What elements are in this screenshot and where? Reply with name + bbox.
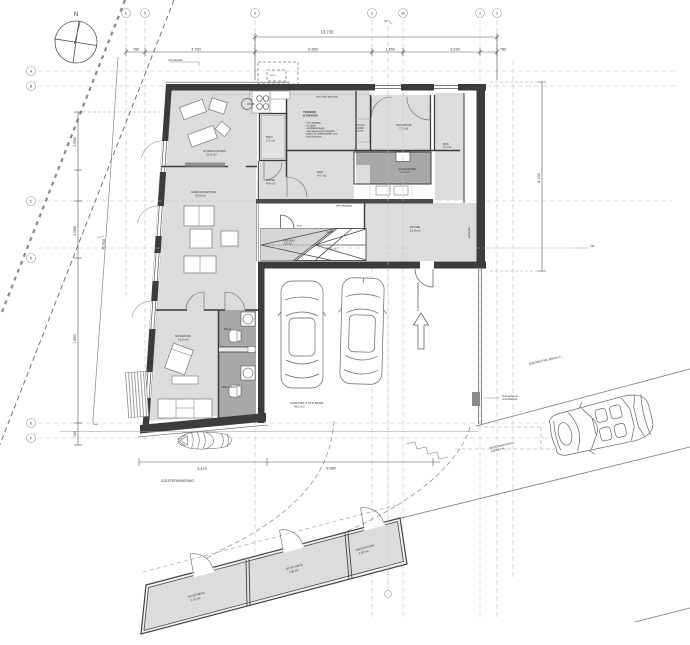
svg-text:trinn: trinn bbox=[297, 225, 302, 228]
svg-text:4: 4 bbox=[254, 11, 256, 15]
svg-text:42: 42 bbox=[384, 19, 388, 23]
svg-text:780: 780 bbox=[500, 48, 506, 52]
svg-text:23.8 m2: 23.8 m2 bbox=[195, 193, 206, 197]
svg-text:GJESTEPARKERING: GJESTEPARKERING bbox=[416, 281, 420, 311]
svg-text:N: N bbox=[74, 12, 78, 18]
svg-text:11.8 m2: 11.8 m2 bbox=[410, 228, 421, 232]
svg-text:4.750: 4.750 bbox=[191, 48, 201, 52]
svg-text:3.230: 3.230 bbox=[450, 48, 460, 52]
svg-text:36.2 m2: 36.2 m2 bbox=[294, 404, 305, 408]
svg-text:6: 6 bbox=[125, 11, 127, 15]
svg-text:1.450: 1.450 bbox=[385, 48, 395, 52]
svg-text:31.9 m2: 31.9 m2 bbox=[206, 152, 217, 156]
svg-text:- bod funksjon: - bod funksjon bbox=[305, 135, 322, 139]
svg-text:vent. fores opp o/tak: vent. fores opp o/tak bbox=[316, 96, 338, 99]
svg-text:4.550: 4.550 bbox=[73, 137, 77, 147]
svg-text:8.350: 8.350 bbox=[308, 48, 318, 52]
svg-text:5: 5 bbox=[144, 11, 146, 15]
svg-text:6.4 m2: 6.4 m2 bbox=[401, 170, 410, 174]
svg-text:2.6 m2: 2.6 m2 bbox=[443, 145, 451, 149]
svg-text:4.9 m2: 4.9 m2 bbox=[266, 181, 276, 185]
svg-text:UTEPL. ALT.: UTEPL. ALT. bbox=[324, 247, 339, 251]
svg-text:KOTT: KOTT bbox=[357, 130, 364, 133]
svg-text:2.088: 2.088 bbox=[73, 226, 77, 236]
svg-text:2b: 2b bbox=[401, 11, 405, 15]
svg-text:5.470: 5.470 bbox=[197, 467, 207, 471]
svg-text:CARP.: CARP. bbox=[326, 230, 334, 234]
svg-text:780: 780 bbox=[133, 48, 139, 52]
svg-text:3: 3 bbox=[371, 11, 373, 15]
svg-text:2: 2 bbox=[479, 11, 481, 15]
svg-text:GJESTEPARKERING: GJESTEPARKERING bbox=[161, 479, 194, 483]
svg-text:5.0 m2: 5.0 m2 bbox=[284, 242, 292, 246]
svg-text:o/et utkraging: o/et utkraging bbox=[336, 204, 352, 208]
svg-text:2.3 m2: 2.3 m2 bbox=[266, 138, 276, 142]
svg-text:7.850: 7.850 bbox=[73, 334, 77, 344]
svg-text:7.3 m2: 7.3 m2 bbox=[399, 126, 409, 130]
svg-text:KJOKKEN: KJOKKEN bbox=[303, 113, 318, 117]
svg-text:o/el taknedl.: o/el taknedl. bbox=[168, 58, 183, 62]
svg-text:t.o.v: t.o.v bbox=[270, 73, 276, 77]
svg-text:BAD GJEST: BAD GJEST bbox=[222, 385, 237, 389]
svg-text:4.6 m2: 4.6 m2 bbox=[317, 173, 327, 177]
svg-text:F: F bbox=[30, 436, 32, 440]
svg-text:BAD 1: BAD 1 bbox=[224, 327, 232, 331]
svg-text:15.0 m2: 15.0 m2 bbox=[178, 337, 189, 341]
svg-text:garderobe: garderobe bbox=[468, 226, 471, 238]
svg-text:1: 1 bbox=[496, 11, 498, 15]
svg-text:1A: 1A bbox=[590, 244, 595, 248]
svg-text:13.730: 13.730 bbox=[321, 30, 334, 35]
svg-text:9.580: 9.580 bbox=[326, 467, 336, 471]
svg-text:8.150: 8.150 bbox=[537, 173, 541, 183]
svg-text:mur/rekkverk: mur/rekkverk bbox=[502, 397, 518, 401]
